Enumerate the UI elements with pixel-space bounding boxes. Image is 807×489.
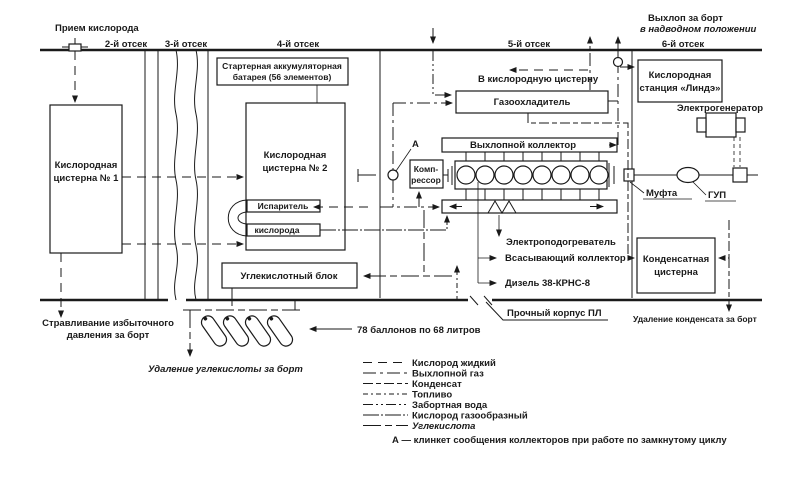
condensate-discharge-label: Удаление конденсата за борт	[633, 314, 757, 324]
coupling-label: Муфта	[646, 188, 678, 199]
generator-label: Электрогенератор	[677, 103, 763, 114]
gup-callout	[693, 182, 706, 195]
oxygen-intake-label: Прием кислорода	[55, 23, 139, 34]
exhaust-manifold-label: Выхлопной коллектор	[470, 140, 576, 151]
co2-discharge-label: Удаление углекислоты за борт	[148, 364, 303, 375]
legend-label-exhaust-gas: Выхлопной газ	[412, 369, 484, 380]
legend-label-co2: Углекислота	[412, 421, 475, 432]
oxygen-tank-1-label: Кислородная	[55, 160, 118, 171]
legend-note: А — клинкет сообщения коллекторов при ра…	[392, 435, 727, 446]
legend-label-fuel: Топливо	[412, 390, 452, 401]
gup-motor	[677, 168, 699, 183]
compartment-4-label: 4-й отсек	[277, 39, 320, 50]
manifold-interconnect-valve	[358, 103, 411, 207]
legend-label-condensate: Конденсат	[412, 379, 462, 390]
linde-station-label: Кислородная	[649, 70, 712, 81]
exhaust-overboard-label: Выхлоп за борт	[648, 13, 723, 24]
evaporator-label: Испаритель	[258, 201, 309, 211]
balloons-label: 78 баллонов по 68 литров	[357, 325, 481, 336]
submarine-closed-cycle-diesel-schematic: 2-й отсек 3-й отсек 4-й отсек 5-й отсек …	[0, 0, 807, 489]
compressor-coupling-icon	[443, 166, 452, 185]
oxygen-tank-2-label: цистерна № 2	[263, 163, 328, 174]
co2-balloons	[199, 313, 295, 348]
starter-battery-label: батарея (56 элементов)	[233, 72, 332, 82]
wavy-break-line	[195, 50, 198, 300]
seawater-pipe	[433, 28, 451, 95]
diesel-label: Дизель 38-КРНС-8	[505, 278, 590, 289]
legend-label-seawater: Забортная вода	[412, 400, 488, 411]
intake-manifold-label: Всасывающий коллектор	[505, 253, 626, 264]
valve-a-label: А	[412, 139, 419, 150]
to-oxygen-tank-label: В кислородную цистерну	[478, 74, 599, 85]
vent-overboard-label: Стравливание избыточного	[42, 318, 174, 329]
coupling	[624, 169, 634, 181]
oxygen-tank-2-label: Кислородная	[264, 150, 327, 161]
compressor-label: рессор	[411, 175, 441, 185]
compartment-2-label: 2-й отсек	[105, 39, 148, 50]
linde-oxygen-station	[638, 60, 722, 102]
starter-battery-label: Стартерная аккумуляторная	[222, 61, 342, 71]
compartment-5-label: 5-й отсек	[508, 39, 551, 50]
gas-cooler-label: Газоохладитель	[494, 97, 571, 108]
compressor-label: Комп-	[414, 164, 439, 174]
condensate-pipe	[719, 220, 729, 258]
engine-callout-lines	[478, 182, 496, 283]
heater-label: Электроподогреватель	[506, 237, 616, 248]
condensate-tank-label: Конденсатная	[643, 254, 709, 265]
evaporator-label: кислорода	[254, 225, 299, 235]
thrust-block	[733, 168, 747, 182]
legend-label-liquid-oxygen: Кислород жидкий	[412, 358, 496, 369]
wavy-break-line	[175, 50, 178, 300]
diagram-page: 2-й отсек 3-й отсек 4-й отсек 5-й отсек …	[0, 0, 807, 489]
exhaust-overboard-label: в надводном положении	[640, 24, 757, 35]
condensate-tank-label: цистерна	[654, 267, 698, 278]
oxygen-tank-1-label: цистерна № 1	[54, 173, 120, 184]
co2-block-label: Углекислотный блок	[241, 271, 338, 282]
legend: Кислород жидкий Выхлопной газ Конденсат …	[363, 358, 727, 446]
vent-overboard-label: давления за борт	[67, 330, 150, 341]
condensate-tank	[637, 238, 715, 293]
linde-station-label: станция «Линдэ»	[640, 83, 721, 94]
legend-label-gaseous-oxygen: Кислород газообразный	[412, 411, 528, 422]
electric-generator	[697, 113, 745, 167]
hull-label: Прочный корпус ПЛ	[507, 308, 602, 319]
gup-label: ГУП	[708, 190, 726, 201]
compartment-6-label: 6-й отсек	[662, 39, 705, 50]
compartment-3-label: 3-й отсек	[165, 39, 208, 50]
